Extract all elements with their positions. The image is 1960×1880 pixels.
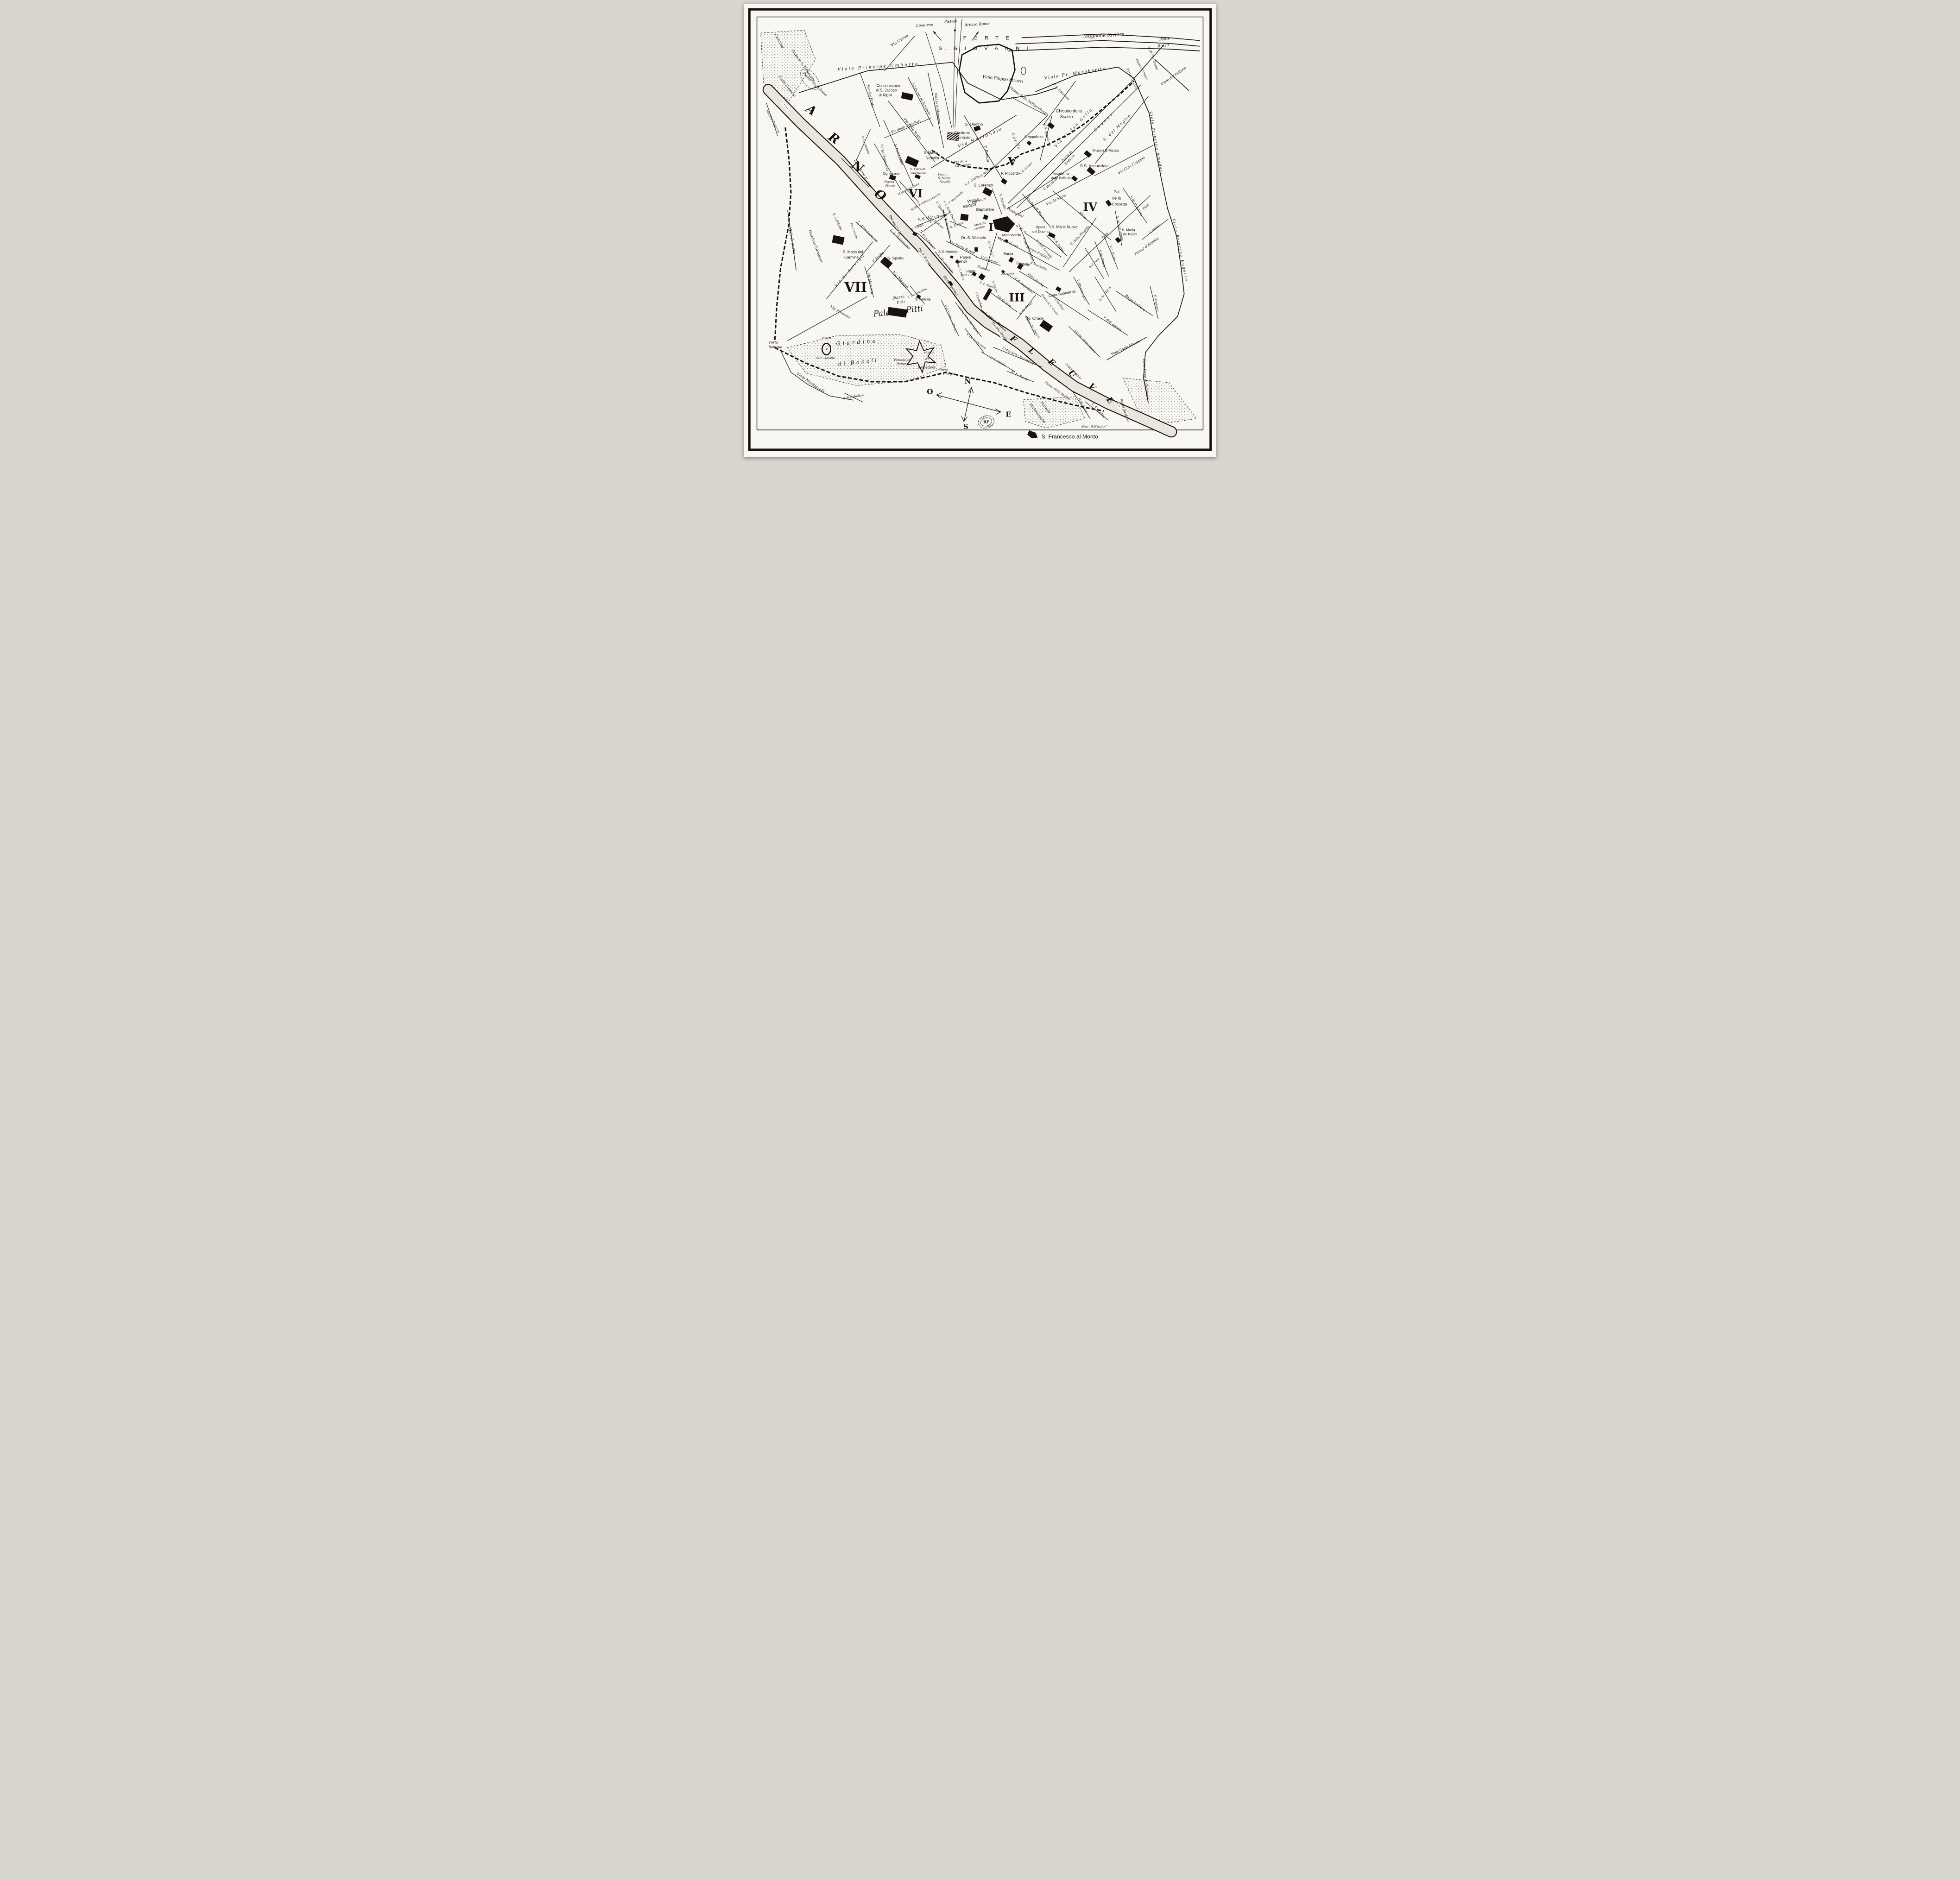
label-de-pazzi: de Pazzi bbox=[1123, 232, 1137, 236]
label-baptist-re: Baptistère bbox=[976, 207, 994, 212]
label-piazza: Piazza bbox=[884, 180, 894, 184]
label-s-giorgio: S. Giorgio bbox=[939, 372, 955, 376]
label-ognissanti: Ognissanti bbox=[883, 171, 899, 176]
label-carmine: Carmine bbox=[844, 255, 859, 259]
stamp-monogram: RF bbox=[983, 420, 989, 424]
label-conservatorio: Conservatorio bbox=[877, 84, 900, 88]
label-badia: Badia bbox=[1004, 252, 1013, 256]
label-pitti: Pitti bbox=[905, 304, 923, 315]
label-s-maria: S. Maria bbox=[1122, 228, 1135, 232]
district-numeral-VII: VII bbox=[844, 279, 867, 295]
label-porta: Porta bbox=[769, 340, 778, 344]
label-loggia: Loggia bbox=[966, 269, 975, 273]
label-di: di bbox=[925, 357, 929, 361]
label-piazza: Piazza bbox=[938, 173, 948, 176]
compass-east: E bbox=[1005, 410, 1011, 418]
label-forte: Forte bbox=[923, 350, 934, 354]
district-numeral-V: V bbox=[1007, 155, 1017, 168]
label-accademia: Accademia bbox=[1053, 172, 1069, 176]
label-scalzo: Scalzo bbox=[1060, 114, 1073, 119]
label-s-s-annunziata: S.S. Annunziata bbox=[1080, 164, 1109, 168]
label-di-ripoli: di Ripoli bbox=[879, 93, 892, 97]
label-stazione: Stazione bbox=[954, 131, 970, 135]
label-palais: Palais bbox=[960, 255, 971, 259]
label-chiostro-della: Chiostro della bbox=[1056, 109, 1082, 114]
label-de-la: de la bbox=[1112, 196, 1121, 200]
label-barr-s-nicolo-: Barr. S.Nicolo ° bbox=[1081, 424, 1107, 429]
label-crocetta: Crocetta bbox=[1112, 202, 1127, 207]
label-s-franc-di: S. Franc.di bbox=[910, 168, 925, 171]
map-sheet: Mugnone RivièrePonteRossoV. di Pte Rosso… bbox=[744, 4, 1216, 457]
label-pal-: Pal. bbox=[1113, 189, 1120, 194]
label-romana: Romana bbox=[768, 345, 783, 349]
label-novella: Novella bbox=[926, 156, 939, 160]
label-misericordia: Misericordia bbox=[1002, 233, 1022, 237]
label-s-croce: S. Croce bbox=[1027, 316, 1044, 321]
label-museo-s-marco: Museo S.Marco bbox=[1093, 148, 1119, 152]
building-palais-strozzi bbox=[960, 214, 968, 221]
label-vasca: Vasca bbox=[822, 336, 831, 340]
exit-label-pistoie: Pistoie bbox=[943, 19, 957, 24]
label-di-s-jacopo: di S. Jacopo bbox=[876, 88, 897, 93]
label-s-maria-del: S. Maria del bbox=[843, 250, 863, 254]
vasca-center bbox=[826, 348, 827, 349]
label-s-maria: S.Maria bbox=[924, 150, 938, 155]
label-dei-lanzi: dei Lanzi bbox=[962, 273, 976, 277]
bottom-note: S. Francesco al Monto bbox=[1042, 433, 1098, 440]
district-numeral-I: I bbox=[988, 222, 993, 234]
label-belvedere: Belvedere bbox=[917, 365, 936, 369]
label-p-riccardi: P. Riccardi bbox=[1001, 171, 1018, 176]
label-s-spirito: S. Spirito bbox=[887, 256, 904, 260]
label-fontana-del: Fontana del bbox=[893, 359, 911, 362]
label-s-appolonio: S.Appolonio bbox=[1024, 135, 1043, 139]
label-vanchetoni: Vanchetoni bbox=[910, 172, 926, 175]
forte-s-giovanni-label-0: F O R T E bbox=[963, 36, 1012, 41]
label-s-onofrio: S. Onofrio bbox=[965, 122, 983, 126]
label-novella-: Novella. bbox=[939, 181, 952, 184]
label-s-felicita: S. Felicita bbox=[915, 297, 931, 302]
forte-s-giovanni-label-1: S. G I O V A N N I bbox=[939, 46, 1031, 51]
district-numeral-III: III bbox=[1009, 291, 1024, 304]
label-opera: Opera bbox=[1036, 225, 1046, 229]
label-s-lorenzo: S. Lorenzo bbox=[974, 183, 993, 188]
label-s-maria-nuova: S. Maria Nuova bbox=[1052, 225, 1078, 229]
district-numeral-VI: VI bbox=[908, 187, 923, 200]
label-s-maria: S. Maria bbox=[938, 177, 950, 180]
label-porta: Porta bbox=[939, 368, 948, 372]
label-uguccioni: Uguccioni bbox=[1001, 272, 1015, 275]
florence-city-map: Mugnone RivièrePonteRossoV. di Pte Rosso… bbox=[744, 4, 1216, 457]
label-centrale: Centrale bbox=[955, 135, 971, 140]
district-numeral-IV: IV bbox=[1083, 200, 1097, 214]
label-s-s-apostoli: S.S. Apostoli bbox=[938, 250, 959, 254]
label-manin: Manin bbox=[885, 184, 895, 188]
label-nettuno: Nettuno bbox=[896, 362, 909, 366]
label-dell-isolotto: dell' Isolotto bbox=[816, 356, 835, 360]
compass-west: O bbox=[927, 388, 933, 396]
compass-south: S bbox=[963, 423, 968, 431]
label-del-duomo: del Duomo bbox=[1032, 230, 1050, 234]
compass-north: N bbox=[964, 377, 971, 385]
label-or-s-michele: Or. S. Michele bbox=[961, 235, 986, 240]
